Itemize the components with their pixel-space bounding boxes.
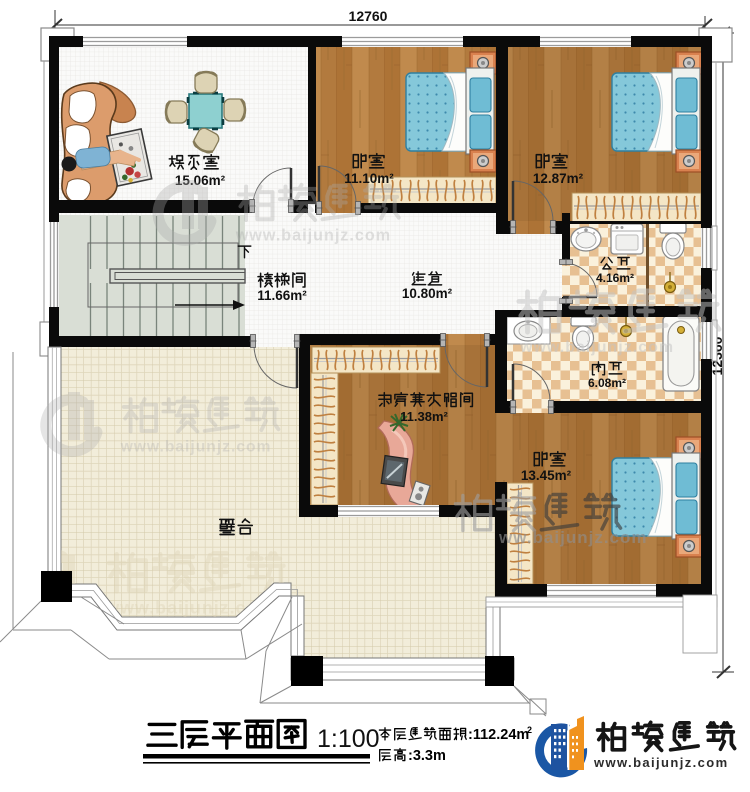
svg-text:1:100: 1:100 bbox=[317, 725, 380, 753]
svg-text:ww.baijunjz.com: ww.baijunjz.com bbox=[498, 528, 648, 547]
svg-text:11.66m²: 11.66m² bbox=[257, 288, 307, 303]
svg-text:www.baijunjz.com: www.baijunjz.com bbox=[593, 755, 729, 770]
svg-text:4.16m²: 4.16m² bbox=[596, 271, 634, 285]
svg-text:10.80m²: 10.80m² bbox=[402, 286, 453, 301]
svg-text:2: 2 bbox=[527, 725, 532, 735]
svg-text::3.3m: :3.3m bbox=[408, 748, 446, 764]
svg-text:www.baijunjz.com: www.baijunjz.com bbox=[120, 438, 272, 455]
svg-text:11.38m²: 11.38m² bbox=[400, 409, 448, 424]
svg-text:12.87m²: 12.87m² bbox=[533, 171, 584, 186]
svg-text:www.baijunjz.com: www.baijunjz.com bbox=[235, 226, 391, 244]
svg-text:www.baijunjz.com: www.baijunjz.com bbox=[519, 339, 674, 356]
svg-text::112.24m: :112.24m bbox=[468, 727, 529, 743]
svg-text:12760: 12760 bbox=[349, 8, 388, 24]
svg-text:13.45m²: 13.45m² bbox=[521, 468, 572, 483]
svg-text:6.08m²: 6.08m² bbox=[588, 376, 626, 390]
